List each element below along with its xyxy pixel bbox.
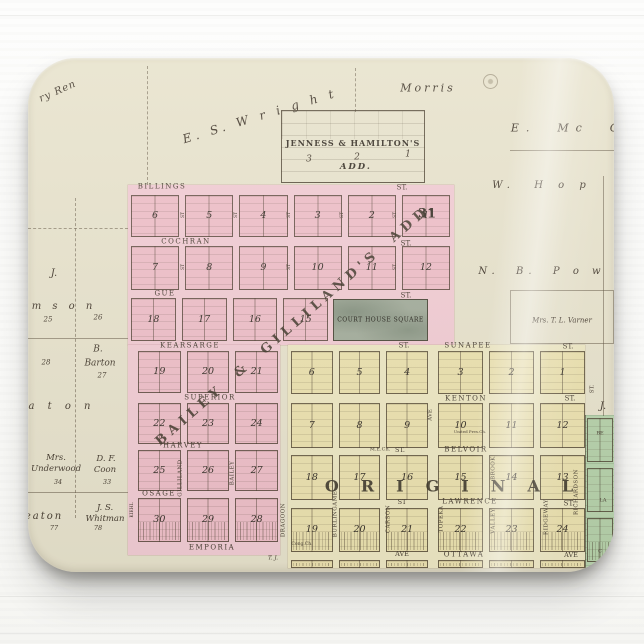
- block-row: [587, 518, 613, 562]
- block-number: 4: [260, 210, 266, 221]
- street-st-v4: ST: [341, 212, 346, 218]
- owner-amson: m s o n: [32, 302, 97, 312]
- block-11: 11: [489, 403, 534, 448]
- street-sunapee-st: ST.: [563, 344, 574, 351]
- block-17: 17: [182, 298, 227, 341]
- block-number: 2: [508, 366, 514, 377]
- block-9: 9: [239, 246, 287, 290]
- owner-barton: Barton: [84, 360, 115, 369]
- block-6: 6: [291, 351, 333, 394]
- block-8: 8: [185, 246, 233, 290]
- block-number: 6: [152, 210, 158, 221]
- block-7: 7: [131, 246, 179, 290]
- block-3: 3: [438, 351, 483, 394]
- block-22: 22: [438, 508, 483, 552]
- jenness-block-1: 1: [405, 151, 411, 160]
- street-osage: OSAGE: [142, 491, 176, 498]
- block-number: 3: [315, 210, 321, 221]
- street-harvey: HARVEY: [163, 443, 203, 450]
- block-number: 24: [251, 417, 263, 428]
- block: [540, 560, 585, 568]
- owner-morris: Morris: [400, 83, 456, 94]
- street-st-v8: ST: [394, 264, 399, 270]
- mousepad: 6543217891011121817161519202122232425262…: [28, 58, 614, 572]
- owner-e-mc: E. Mc C: [511, 123, 614, 134]
- block-number: 26: [202, 464, 214, 475]
- block-20: 20: [339, 508, 381, 552]
- block-row: 654: [291, 351, 428, 394]
- parcel-77: 77: [50, 525, 58, 532]
- owner-underwood-mrs: Mrs.: [46, 454, 66, 463]
- street-gue: GUE: [154, 291, 175, 298]
- street-topeka: TOPEKA: [439, 506, 445, 533]
- block-number: 17: [198, 313, 210, 324]
- wood-plank-seam: [0, 15, 644, 16]
- owner-j-left: J.: [51, 269, 57, 279]
- parcel-26: 26: [94, 315, 103, 322]
- section-line: [147, 66, 148, 185]
- street-carson: CARSON: [386, 505, 392, 533]
- block-3: 3: [294, 195, 342, 237]
- wood-plank-seam: [0, 633, 644, 634]
- street-lawrence-st-w: ST: [398, 499, 407, 506]
- survey-mark-icon: [483, 74, 498, 89]
- block-24: 24: [235, 403, 278, 444]
- block-30: 30: [138, 498, 181, 542]
- block-number: 3: [457, 366, 463, 377]
- parcel-33: 33: [103, 479, 111, 486]
- section-line: [510, 150, 614, 151]
- block-number: 11: [505, 419, 517, 430]
- block-row: [291, 560, 428, 568]
- owner-eaton: eaton: [28, 512, 63, 522]
- street-st-v6: ST: [182, 264, 187, 270]
- street-lawrence: LAWRENCE: [442, 499, 498, 506]
- street-topeka-ave: AVE: [428, 409, 434, 421]
- block-number: 19: [153, 366, 165, 377]
- label-me-church: M.E.Ch.: [370, 448, 391, 453]
- block-number: 18: [147, 313, 159, 324]
- wood-plank-seam: [0, 596, 644, 597]
- block-number: 18: [306, 471, 318, 482]
- block-row: [587, 418, 613, 462]
- block-25: 25: [138, 450, 181, 491]
- block-row: 302928: [138, 498, 278, 542]
- block-number: 8: [356, 419, 362, 430]
- block-29: 29: [187, 498, 230, 542]
- block: [386, 560, 428, 568]
- street-burlingame: BURLINGAME: [333, 491, 339, 537]
- block-10: 10: [438, 403, 483, 448]
- parcel-78: 78: [94, 525, 102, 532]
- street-kearsarge: KEARSARGE: [160, 343, 220, 350]
- block-number: 27: [251, 464, 263, 475]
- street-st-right-edge: ST.: [590, 385, 596, 393]
- street-ottawa: OTTAWA: [444, 552, 485, 559]
- block-21: 21: [386, 508, 428, 552]
- block-number: 2: [369, 210, 375, 221]
- block: [438, 560, 483, 568]
- block-number: 8: [206, 262, 212, 273]
- block-row: 101112: [438, 403, 585, 448]
- label-cong-ch: Cong.Ch.: [291, 543, 312, 548]
- street-billings-st: ST.: [397, 185, 408, 192]
- street-ottawa-ave-w: AVE: [395, 551, 409, 558]
- block-number: 5: [356, 366, 362, 377]
- street-cochran: COCHRAN: [161, 239, 211, 246]
- street-superior: SUPERIOR: [184, 395, 236, 402]
- street-richardson: RICHARDSON: [574, 469, 580, 515]
- block-7: 7: [291, 403, 333, 448]
- street-gue-st: ST.: [401, 293, 412, 300]
- street-st-v7: ST: [288, 264, 293, 270]
- block-number: 4: [404, 366, 410, 377]
- block: [291, 560, 333, 568]
- block: [489, 560, 534, 568]
- block-number: 24: [556, 524, 568, 535]
- block-19: 19: [138, 351, 181, 393]
- owner-whitman-js: J. S.: [97, 504, 113, 513]
- block-row: 789: [291, 403, 428, 448]
- parcel-28: 28: [42, 360, 51, 367]
- block-number: 12: [556, 419, 568, 430]
- street-bailey: BAILEY: [230, 461, 236, 485]
- parcel-34: 34: [54, 479, 62, 486]
- block-number: 29: [202, 514, 214, 525]
- block-number: 7: [309, 419, 315, 430]
- block-26: 26: [187, 450, 230, 491]
- block-12: 12: [540, 403, 585, 448]
- block-27: 27: [235, 450, 278, 491]
- green-street-c: C: [598, 550, 602, 555]
- section-line: [28, 492, 128, 493]
- block-6: 6: [131, 195, 179, 237]
- antique-plat-map: 6543217891011121817161519202122232425262…: [28, 58, 614, 572]
- street-kenton: KENTON: [445, 396, 487, 403]
- block-8: 8: [339, 403, 381, 448]
- owner-tj: T. J.: [268, 556, 278, 562]
- parcel-27: 27: [98, 373, 107, 380]
- owner-nb-pow: N. B. P o w: [478, 267, 605, 277]
- street-sunapee: SUNAPEE: [444, 343, 491, 350]
- block-number: 1: [559, 366, 565, 377]
- street-st-v2: ST: [235, 212, 240, 218]
- street-gilliland: GILLILAND: [178, 459, 184, 496]
- block-row: 252627: [138, 450, 278, 491]
- street-billings: BILLINGS: [138, 184, 186, 191]
- block-number: 5: [206, 210, 212, 221]
- block-row: 222324: [438, 508, 585, 552]
- block-18: 18: [131, 298, 176, 341]
- block-number: 22: [454, 524, 466, 535]
- green-street-be: BE: [596, 432, 603, 437]
- original-townsite-title: ORIGINAL: [325, 477, 595, 496]
- block-number: 12: [420, 262, 432, 273]
- jenness-block-2: 2: [354, 154, 360, 163]
- block-number: 23: [505, 524, 517, 535]
- block-number: 23: [202, 417, 214, 428]
- block-4: 4: [239, 195, 287, 237]
- owner-w-hop: W. H o p: [492, 181, 592, 191]
- owner-underwood: Underwood: [31, 465, 81, 474]
- street-ridgeway: RIDGEWAY: [544, 499, 550, 535]
- block-number: 9: [260, 262, 266, 273]
- parcel-25: 25: [44, 317, 53, 324]
- block-4: 4: [386, 351, 428, 394]
- block-number: 7: [152, 262, 158, 273]
- street-belvoir-st-w: ST.: [395, 447, 405, 454]
- street-kenton-st: ST.: [565, 396, 576, 403]
- owner-j-right: J.: [600, 402, 606, 412]
- owner-coon: Coon: [94, 466, 116, 475]
- section-line: [355, 68, 356, 112]
- block-1: 1: [540, 351, 585, 394]
- block: [587, 518, 613, 562]
- street-st-v3: ST: [288, 212, 293, 218]
- section-line: [28, 338, 128, 339]
- street-st-v5: ST: [394, 212, 399, 218]
- block: [587, 418, 613, 462]
- owner-barton-b: B.: [93, 346, 102, 355]
- street-ottawa-ave-e: AVE: [564, 552, 578, 559]
- owner-whitman: Whitman: [86, 515, 125, 524]
- court-house-square-label: COURT HOUSE SQUARE: [337, 317, 424, 324]
- scene-background: { "colors":{ "map_paper":"#e8e3cd", "pin…: [0, 0, 644, 644]
- jenness-hamilton-addition-block: JENNESS & HAMILTON'S ADD.: [281, 110, 425, 183]
- block-number: 16: [249, 313, 261, 324]
- jenness-addition-add-label: ADD.: [340, 162, 372, 172]
- block-number: 6: [309, 366, 315, 377]
- section-31-label: 31: [418, 207, 436, 222]
- block-number: 25: [153, 464, 165, 475]
- block-number: 21: [401, 524, 413, 535]
- block-number: 9: [404, 419, 410, 430]
- owner-varner: Mrs. T. L. Varner: [532, 318, 592, 325]
- jenness-addition-title: JENNESS & HAMILTON'S: [286, 138, 421, 148]
- block-row: [438, 560, 585, 568]
- block: [339, 560, 381, 568]
- block-2: 2: [489, 351, 534, 394]
- street-valley: VALLEY: [491, 508, 497, 534]
- street-dragoon: DRAGOON: [281, 503, 287, 537]
- street-st-v1: ST: [182, 212, 187, 218]
- block-5: 5: [185, 195, 233, 237]
- owner-ren: ry Ren: [38, 79, 78, 104]
- street-brook: BROOK: [491, 456, 497, 480]
- block-number: 28: [251, 514, 263, 525]
- green-street-la: LA: [600, 499, 607, 504]
- block-number: 20: [202, 366, 214, 377]
- jenness-block-3: 3: [306, 156, 312, 165]
- label-united-pres: United Pres.Ch.: [454, 430, 486, 434]
- street-cochran-st: ST.: [401, 241, 412, 248]
- street-kiehl: KIEHL: [131, 502, 136, 517]
- block-5: 5: [339, 351, 381, 394]
- owner-coon-df: D. F.: [96, 455, 115, 464]
- section-line: [28, 228, 128, 229]
- block-number: 20: [353, 524, 365, 535]
- owner-aton: a t o n: [29, 402, 96, 412]
- street-belvoir: BELVOIR: [444, 447, 487, 454]
- street-kearsarge-st: ST.: [399, 343, 410, 350]
- block-number: 19: [306, 524, 318, 535]
- block-9: 9: [386, 403, 428, 448]
- block-row: 321: [438, 351, 585, 394]
- block-number: 10: [312, 262, 324, 273]
- court-house-square: COURT HOUSE SQUARE: [333, 299, 428, 341]
- block-28: 28: [235, 498, 278, 542]
- block-number: 30: [153, 514, 165, 525]
- street-emporia: EMPORIA: [189, 545, 235, 552]
- block-12: 12: [402, 246, 450, 290]
